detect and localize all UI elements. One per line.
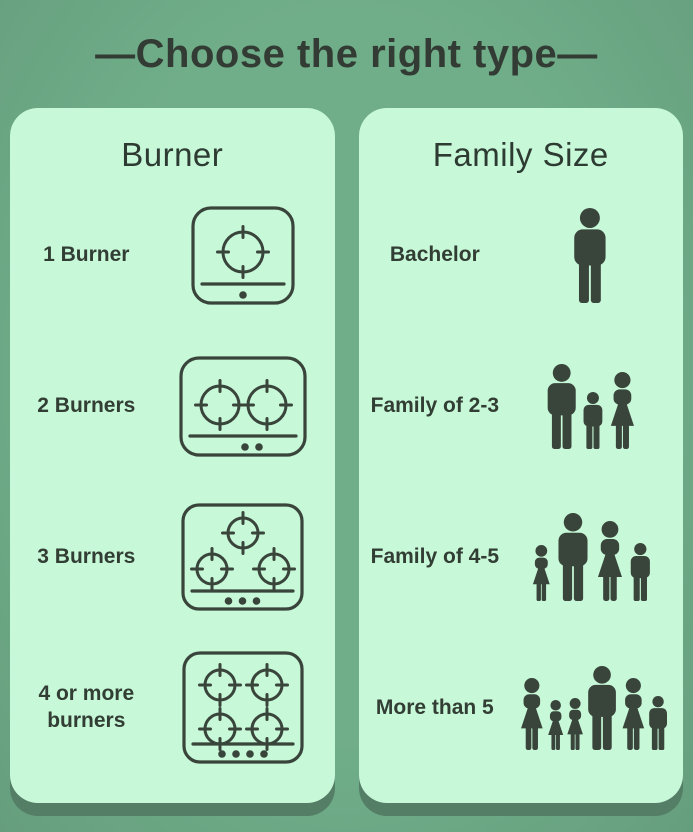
row-label: 4 or more burners	[16, 681, 157, 734]
row-label: Bachelor	[365, 242, 506, 268]
row-family-1: Family of 2-3	[365, 331, 678, 482]
family-rows: BachelorFamily of 2-3Family of 4-5More t…	[365, 180, 678, 783]
row-burner-2: 3 Burners	[16, 482, 329, 633]
title-bar: —Choose the right type—	[0, 0, 693, 108]
panel-title: Burner	[16, 136, 329, 174]
family-4-5-icon	[505, 513, 677, 601]
family-panel: Family Size BachelorFamily of 2-3Family …	[359, 108, 684, 803]
row-family-0: Bachelor	[365, 180, 678, 331]
row-label: More than 5	[365, 695, 506, 721]
stove-1-burner-icon	[157, 206, 329, 305]
burner-panel: Burner 1 Burner2 Burners3 Burners4 or mo…	[10, 108, 335, 803]
stove-2-burners-icon	[157, 356, 329, 457]
panel-title: Family Size	[365, 136, 678, 174]
infographic-title: —Choose the right type—	[95, 32, 598, 77]
row-label: Family of 2-3	[365, 393, 506, 419]
row-burner-0: 1 Burner	[16, 180, 329, 331]
stove-3-burners-icon	[157, 503, 329, 611]
bachelor-icon	[505, 208, 677, 303]
panels-container: Burner 1 Burner2 Burners3 Burners4 or mo…	[0, 108, 693, 803]
row-label: Family of 4-5	[365, 544, 506, 570]
row-family-2: Family of 4-5	[365, 482, 678, 633]
family-2-3-icon	[505, 364, 677, 449]
stove-4-burners-icon	[157, 651, 329, 764]
burner-rows: 1 Burner2 Burners3 Burners4 or more burn…	[16, 180, 329, 783]
family-6-icon	[505, 666, 677, 750]
row-burner-1: 2 Burners	[16, 331, 329, 482]
row-burner-3: 4 or more burners	[16, 632, 329, 783]
row-label: 3 Burners	[16, 544, 157, 570]
row-label: 1 Burner	[16, 242, 157, 268]
row-label: 2 Burners	[16, 393, 157, 419]
row-family-3: More than 5	[365, 632, 678, 783]
